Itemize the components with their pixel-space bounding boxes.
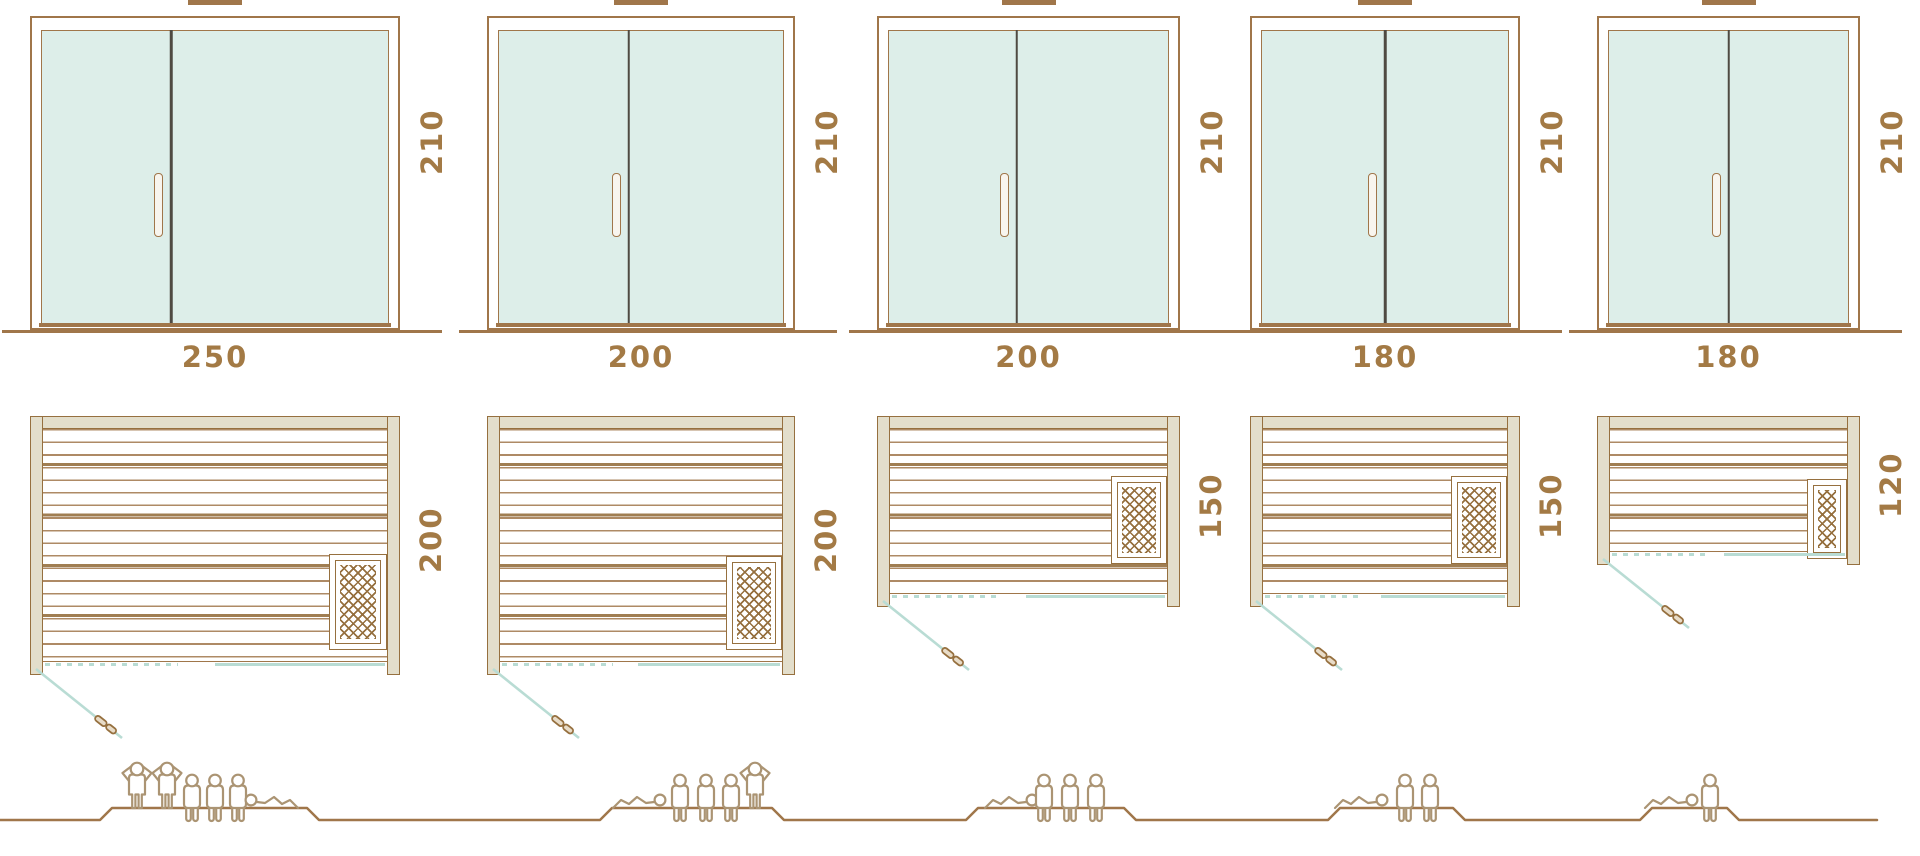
plan-right-post bbox=[782, 416, 795, 675]
chimney-vent bbox=[614, 0, 668, 5]
person-seated-icon bbox=[698, 775, 714, 821]
plan-right-post bbox=[1507, 416, 1520, 607]
person-seated-icon bbox=[184, 775, 200, 821]
person-seated-icon bbox=[1702, 775, 1718, 821]
sauna-column-3: 210 200 150 bbox=[877, 0, 1180, 856]
plan-back-wall bbox=[1250, 416, 1520, 429]
heater bbox=[732, 562, 776, 644]
door-elevation bbox=[487, 16, 795, 330]
sauna-size-diagram: 210 250 200 bbox=[0, 0, 1920, 856]
plan-left-post bbox=[1597, 416, 1610, 565]
person-lying-icon bbox=[1645, 795, 1697, 808]
fixed-glass-line bbox=[1381, 595, 1505, 598]
door-elevation bbox=[1250, 16, 1520, 330]
door-handle-icon bbox=[1368, 173, 1377, 237]
door-threshold bbox=[1259, 323, 1511, 327]
door-divider bbox=[1015, 30, 1018, 326]
sauna-column-4: 210 180 150 bbox=[1250, 0, 1520, 856]
door-handle-icon bbox=[1712, 173, 1721, 237]
depth-dimension-label: 120 bbox=[1874, 460, 1908, 518]
chimney-vent bbox=[188, 0, 242, 5]
door-divider bbox=[628, 30, 631, 326]
fixed-glass-line bbox=[1724, 553, 1845, 556]
depth-dimension-label: 200 bbox=[809, 515, 843, 573]
floor-plan: 120 bbox=[1597, 416, 1860, 562]
heater bbox=[335, 560, 381, 644]
heater-grill-icon bbox=[737, 567, 771, 639]
heater-niche bbox=[329, 554, 387, 650]
capacity-group-3 bbox=[985, 775, 1104, 821]
door-elevation bbox=[30, 16, 400, 330]
door-divider bbox=[1384, 30, 1387, 326]
person-lying-icon bbox=[246, 795, 298, 808]
heater-niche bbox=[1807, 479, 1847, 559]
person-seated-icon bbox=[1397, 775, 1413, 821]
person-lying-icon bbox=[985, 795, 1037, 808]
plan-right-post bbox=[1847, 416, 1860, 565]
fixed-glass-line bbox=[1026, 595, 1165, 598]
heater-niche bbox=[1451, 476, 1507, 564]
plan-back-wall bbox=[1597, 416, 1860, 429]
plan-right-post bbox=[387, 416, 400, 675]
plan-left-post bbox=[877, 416, 890, 607]
plan-right-post bbox=[1167, 416, 1180, 607]
floor-plan: 150 bbox=[1250, 416, 1520, 604]
door-handle-icon bbox=[551, 715, 574, 735]
ground-line bbox=[849, 330, 1222, 333]
width-dimension-label: 250 bbox=[30, 340, 400, 374]
door-handle-icon bbox=[941, 647, 964, 667]
sauna-column-5: 210 180 120 bbox=[1597, 0, 1860, 856]
door-elevation bbox=[1597, 16, 1860, 330]
open-door-swing bbox=[22, 666, 152, 758]
glass-panels bbox=[888, 30, 1169, 326]
door-handle-icon bbox=[154, 173, 163, 237]
person-seated-icon bbox=[1422, 775, 1438, 821]
open-door-swing bbox=[479, 666, 609, 758]
ground-line bbox=[2, 330, 442, 333]
width-dimension-label: 200 bbox=[877, 340, 1180, 374]
person-seated-icon bbox=[1036, 775, 1052, 821]
ground-line bbox=[459, 330, 837, 333]
capacity-strip bbox=[0, 750, 1920, 856]
heater-grill-icon bbox=[340, 565, 376, 639]
capacity-group-1 bbox=[123, 763, 299, 821]
open-door-swing bbox=[1589, 556, 1719, 648]
glass-panels bbox=[498, 30, 784, 326]
door-handle-icon bbox=[1661, 605, 1684, 625]
chimney-vent bbox=[1358, 0, 1412, 5]
person-seated-icon bbox=[1062, 775, 1078, 821]
door-threshold bbox=[1606, 323, 1851, 327]
height-dimension-label: 210 bbox=[1535, 115, 1569, 175]
fixed-glass-line bbox=[638, 663, 780, 666]
plan-back-wall bbox=[487, 416, 795, 429]
heater bbox=[1117, 482, 1161, 558]
chimney-vent bbox=[1002, 0, 1056, 5]
heater bbox=[1457, 482, 1501, 558]
heater-niche bbox=[726, 556, 782, 650]
floor-plan: 200 bbox=[487, 416, 795, 672]
door-threshold bbox=[886, 323, 1171, 327]
door-handle-icon bbox=[1314, 647, 1337, 667]
ground-line bbox=[1222, 330, 1562, 333]
person-standing-icon bbox=[123, 763, 152, 808]
heater-grill-icon bbox=[1122, 487, 1156, 553]
plan-left-post bbox=[30, 416, 43, 675]
floor-plan: 200 bbox=[30, 416, 400, 672]
open-door-swing bbox=[1242, 598, 1372, 690]
person-seated-icon bbox=[230, 775, 246, 821]
heater-grill-icon bbox=[1818, 490, 1836, 548]
capacity-group-2 bbox=[613, 763, 770, 821]
depth-dimension-label: 200 bbox=[414, 515, 448, 573]
person-standing-icon bbox=[153, 763, 182, 808]
person-seated-icon bbox=[207, 775, 223, 821]
height-dimension-label: 210 bbox=[415, 115, 449, 175]
heater-niche bbox=[1111, 476, 1167, 564]
door-elevation bbox=[877, 16, 1180, 330]
depth-dimension-label: 150 bbox=[1534, 481, 1568, 539]
heater-grill-icon bbox=[1462, 487, 1496, 553]
door-handle-icon bbox=[612, 173, 621, 237]
door-threshold bbox=[496, 323, 786, 327]
depth-dimension-label: 150 bbox=[1194, 481, 1228, 539]
width-dimension-label: 200 bbox=[487, 340, 795, 374]
plan-left-post bbox=[487, 416, 500, 675]
open-door-swing bbox=[869, 598, 999, 690]
person-lying-icon bbox=[613, 795, 665, 808]
door-divider bbox=[170, 30, 173, 326]
ground-terrain-line bbox=[0, 808, 1877, 820]
floor-plan: 150 bbox=[877, 416, 1180, 604]
plan-back-wall bbox=[30, 416, 400, 429]
height-dimension-label: 210 bbox=[1195, 115, 1229, 175]
door-handle-icon bbox=[94, 715, 117, 735]
capacity-group-4 bbox=[1335, 775, 1438, 821]
heater bbox=[1813, 485, 1841, 553]
width-dimension-label: 180 bbox=[1250, 340, 1520, 374]
person-seated-icon bbox=[723, 775, 739, 821]
door-handle-icon bbox=[1000, 173, 1009, 237]
height-dimension-label: 210 bbox=[810, 115, 844, 175]
fixed-glass-line bbox=[215, 663, 385, 666]
chimney-vent bbox=[1702, 0, 1756, 5]
plan-left-post bbox=[1250, 416, 1263, 607]
capacity-group-5 bbox=[1645, 775, 1718, 821]
person-standing-icon bbox=[741, 763, 770, 808]
height-dimension-label: 210 bbox=[1875, 115, 1909, 175]
width-dimension-label: 180 bbox=[1597, 340, 1860, 374]
person-lying-icon bbox=[1335, 795, 1387, 808]
sauna-column-1: 210 250 200 bbox=[30, 0, 400, 856]
person-seated-icon bbox=[1088, 775, 1104, 821]
glass-panels bbox=[41, 30, 389, 326]
ground-line bbox=[1569, 330, 1902, 333]
sauna-column-2: 210 200 200 bbox=[487, 0, 795, 856]
door-threshold bbox=[39, 323, 391, 327]
door-divider bbox=[1727, 30, 1730, 326]
plan-back-wall bbox=[877, 416, 1180, 429]
person-seated-icon bbox=[672, 775, 688, 821]
